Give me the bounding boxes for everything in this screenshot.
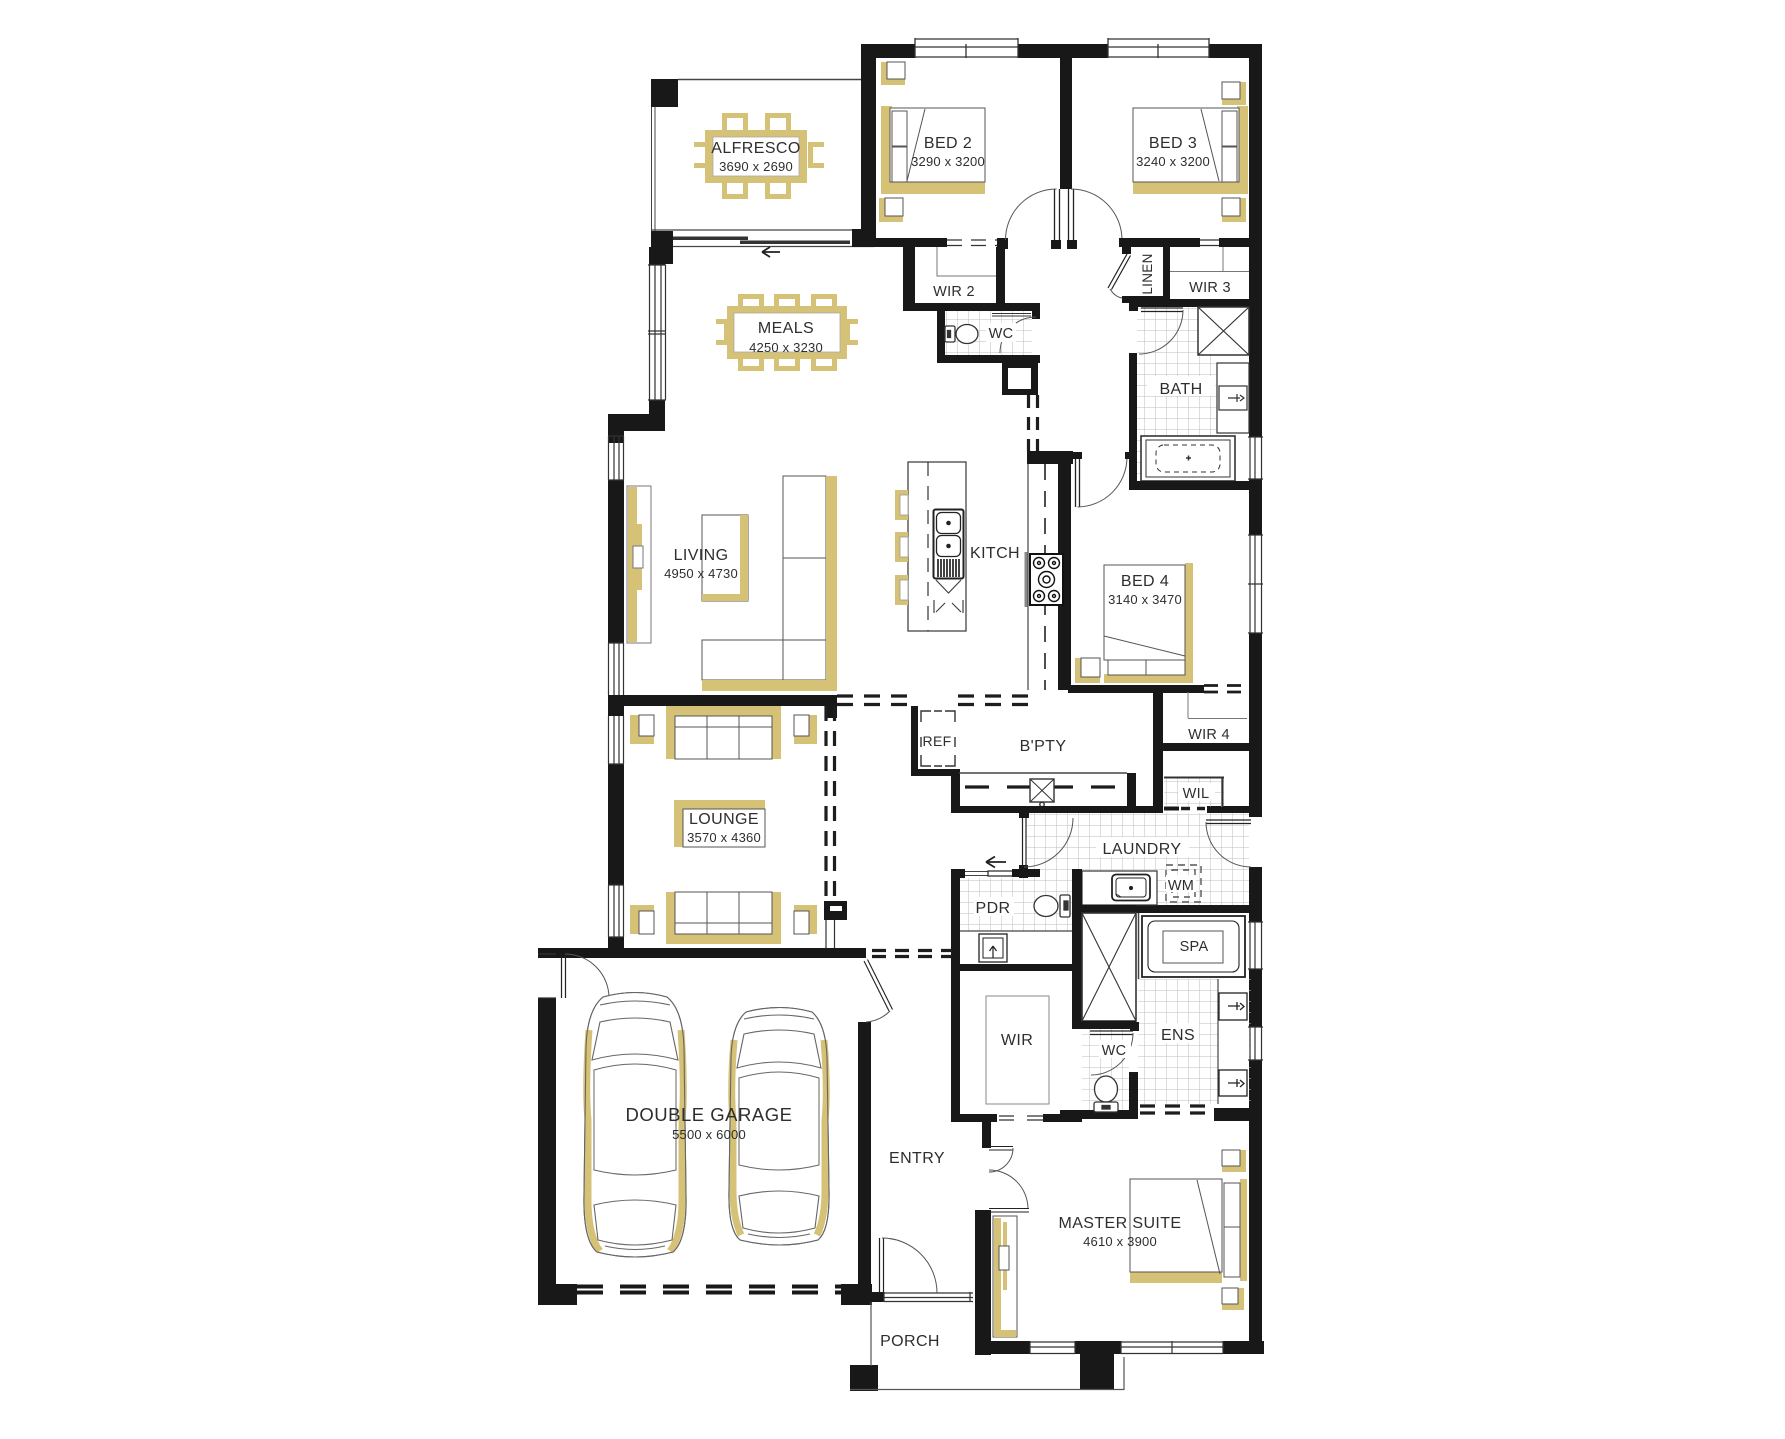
svg-text:WIL: WIL xyxy=(1183,786,1210,802)
svg-text:LINEN: LINEN xyxy=(1140,253,1155,294)
svg-text:LOUNGE: LOUNGE xyxy=(689,811,759,828)
svg-text:3140 x 3470: 3140 x 3470 xyxy=(1108,592,1182,607)
svg-text:4950 x 4730: 4950 x 4730 xyxy=(664,566,738,581)
svg-text:ENS: ENS xyxy=(1161,1027,1195,1044)
svg-text:MASTER SUITE: MASTER SUITE xyxy=(1058,1215,1181,1232)
svg-text:MEALS: MEALS xyxy=(758,320,814,337)
svg-text:WM: WM xyxy=(1168,878,1194,894)
svg-text:ALFRESCO: ALFRESCO xyxy=(711,140,800,157)
svg-text:WC: WC xyxy=(989,326,1014,342)
svg-text:WC: WC xyxy=(1102,1043,1127,1059)
svg-text:LIVING: LIVING xyxy=(674,547,729,564)
svg-text:3690 x 2690: 3690 x 2690 xyxy=(719,159,793,174)
svg-text:REF: REF xyxy=(923,733,952,749)
svg-text:4610 x 3900: 4610 x 3900 xyxy=(1083,1234,1157,1249)
svg-text:BED 3: BED 3 xyxy=(1149,135,1197,152)
svg-text:WIR: WIR xyxy=(1001,1032,1033,1049)
svg-text:LAUNDRY: LAUNDRY xyxy=(1103,841,1182,858)
svg-text:DOUBLE GARAGE: DOUBLE GARAGE xyxy=(626,1104,793,1125)
svg-text:3290 x 3200: 3290 x 3200 xyxy=(911,154,985,169)
svg-text:PDR: PDR xyxy=(976,900,1011,917)
svg-text:B'PTY: B'PTY xyxy=(1020,738,1067,755)
svg-text:WIR 2: WIR 2 xyxy=(933,284,975,300)
svg-text:3570 x 4360: 3570 x 4360 xyxy=(687,830,761,845)
svg-text:3240 x 3200: 3240 x 3200 xyxy=(1136,154,1210,169)
svg-text:WIR 4: WIR 4 xyxy=(1188,727,1230,743)
svg-text:BED 4: BED 4 xyxy=(1121,573,1169,590)
svg-text:SPA: SPA xyxy=(1180,939,1209,955)
svg-text:PORCH: PORCH xyxy=(880,1333,940,1350)
svg-text:ENTRY: ENTRY xyxy=(889,1150,945,1167)
svg-text:4250 x 3230: 4250 x 3230 xyxy=(749,340,823,355)
svg-text:WIR 3: WIR 3 xyxy=(1189,280,1231,296)
svg-text:BED 2: BED 2 xyxy=(924,135,972,152)
svg-text:KITCH: KITCH xyxy=(970,545,1020,562)
svg-text:BATH: BATH xyxy=(1159,381,1202,398)
svg-text:5500 x 6000: 5500 x 6000 xyxy=(672,1127,746,1142)
